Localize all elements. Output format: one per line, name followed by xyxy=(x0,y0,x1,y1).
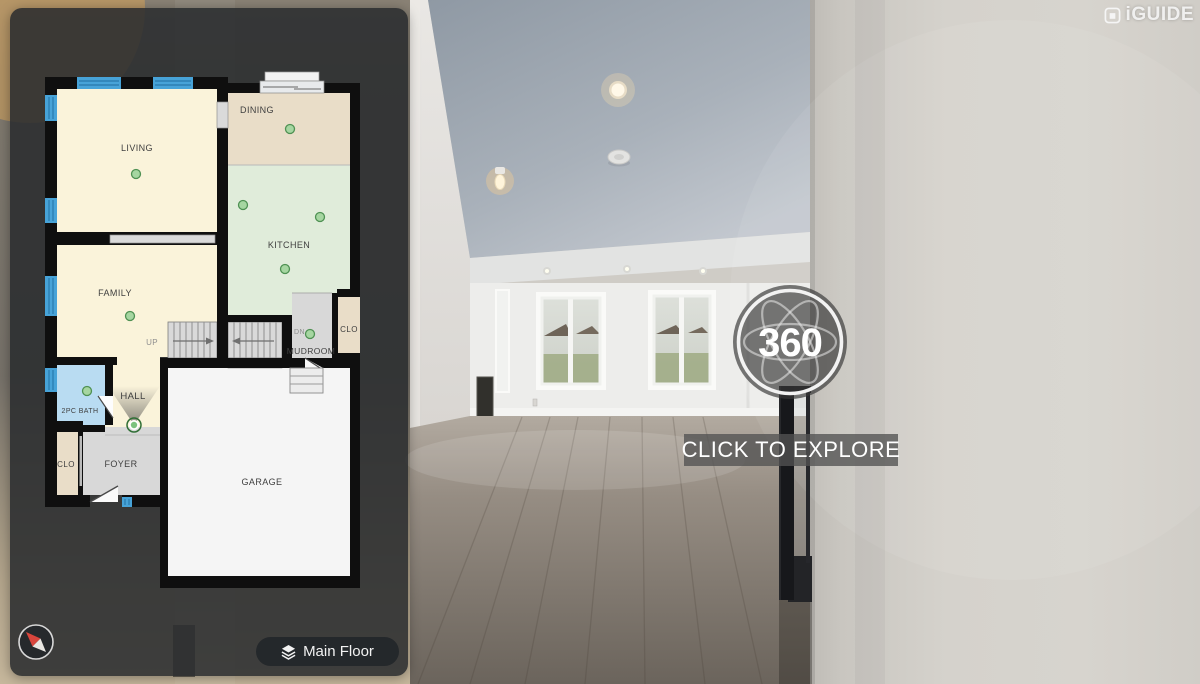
panorama-marker[interactable] xyxy=(316,213,325,222)
pano-360-badge[interactable]: 360 xyxy=(728,280,852,404)
compass-button[interactable] xyxy=(17,623,55,661)
compass-icon xyxy=(17,623,55,661)
label-kitchen: KITCHEN xyxy=(268,240,310,250)
room-bath xyxy=(57,365,105,425)
label-family: FAMILY xyxy=(98,288,132,298)
panorama-marker[interactable] xyxy=(126,312,135,321)
window-side xyxy=(496,290,509,392)
floor-selector-label: Main Floor xyxy=(303,643,374,660)
panorama-marker[interactable] xyxy=(306,330,315,339)
bulb-light xyxy=(486,167,514,195)
label-bath: 2PC BATH xyxy=(62,408,99,415)
ceiling-light xyxy=(601,73,635,107)
mudroom-stoop xyxy=(290,368,323,393)
iguide-logo-text: iGUIDE xyxy=(1126,4,1194,26)
panorama-marker[interactable] xyxy=(239,201,248,210)
label-stairs-down: DN xyxy=(294,329,305,336)
window-left xyxy=(536,292,606,390)
panorama-marker[interactable] xyxy=(281,265,290,274)
badge-360-label: 360 xyxy=(758,321,822,365)
iguide-camera-icon xyxy=(1104,7,1121,24)
floorplan-panel: LIVING DINING KITCHEN FAMILY MUDROOM CLO… xyxy=(10,8,408,676)
panorama-marker[interactable] xyxy=(83,387,92,396)
label-garage: GARAGE xyxy=(242,477,283,487)
stair-railing xyxy=(779,386,812,684)
room-kitchen-ext xyxy=(228,293,292,315)
iguide-viewer: LIVING DINING KITCHEN FAMILY MUDROOM CLO… xyxy=(0,0,1200,684)
window-right xyxy=(648,290,716,390)
label-stairs-up: UP xyxy=(146,338,158,347)
click-to-explore-label: CLICK TO EXPLORE xyxy=(682,437,901,463)
click-to-explore-button[interactable]: CLICK TO EXPLORE xyxy=(684,434,898,466)
label-living: LIVING xyxy=(121,143,153,153)
panorama-marker[interactable] xyxy=(132,170,141,179)
label-closet-right: CLO xyxy=(340,325,358,334)
patio-door xyxy=(260,72,324,93)
floorplan-map[interactable]: LIVING DINING KITCHEN FAMILY MUDROOM CLO… xyxy=(10,8,408,676)
label-foyer: FOYER xyxy=(104,459,137,469)
panorama-marker[interactable] xyxy=(286,125,295,134)
smoke-detector xyxy=(608,150,630,167)
wall-outlet xyxy=(533,399,537,406)
iguide-logo[interactable]: iGUIDE xyxy=(1104,4,1194,26)
fireplace xyxy=(477,377,493,417)
floor-selector-button[interactable]: Main Floor xyxy=(256,637,399,666)
room-garage xyxy=(168,368,350,576)
label-closet-left: CLO xyxy=(57,460,75,469)
label-mudroom: MUDROOM xyxy=(287,346,336,356)
label-dining: DINING xyxy=(240,105,274,115)
room-kitchen xyxy=(228,165,350,293)
room-living xyxy=(57,89,217,232)
layers-icon xyxy=(281,644,296,660)
